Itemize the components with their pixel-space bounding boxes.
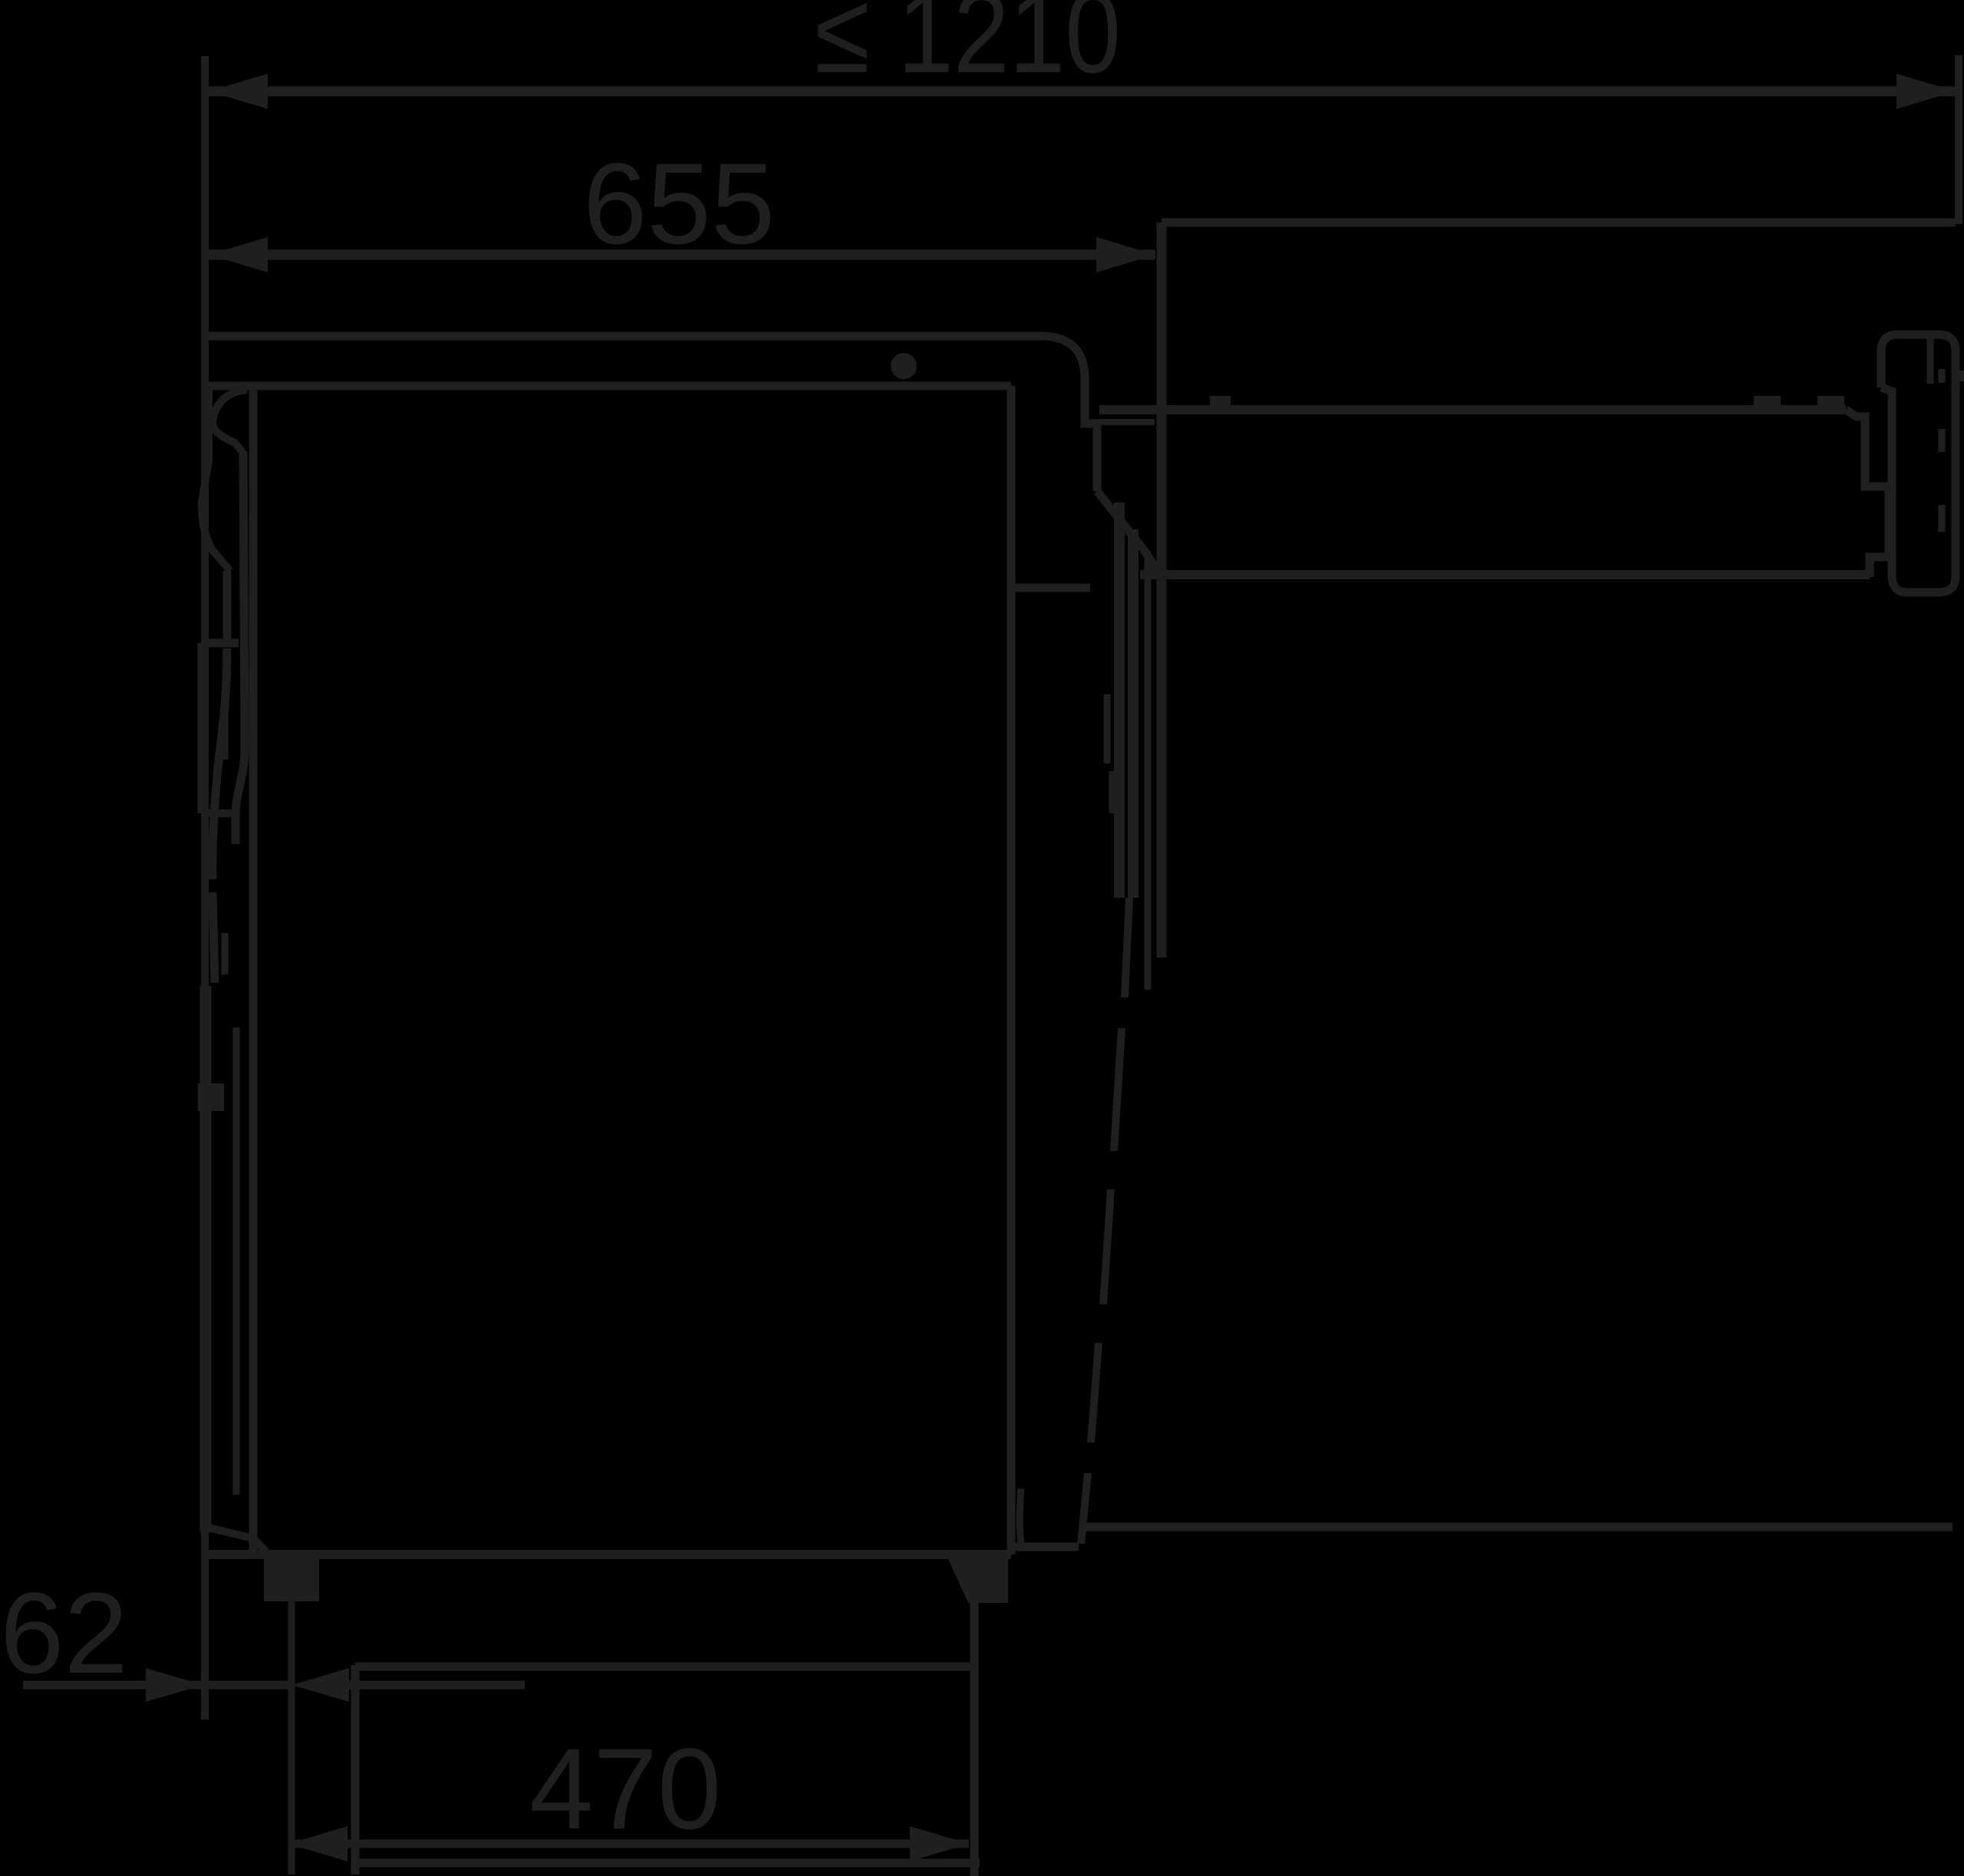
svg-text:62: 62 <box>0 1568 128 1697</box>
svg-text:470: 470 <box>529 1724 721 1853</box>
svg-text:655: 655 <box>583 139 775 268</box>
svg-text:≤ 1210: ≤ 1210 <box>815 0 1121 97</box>
